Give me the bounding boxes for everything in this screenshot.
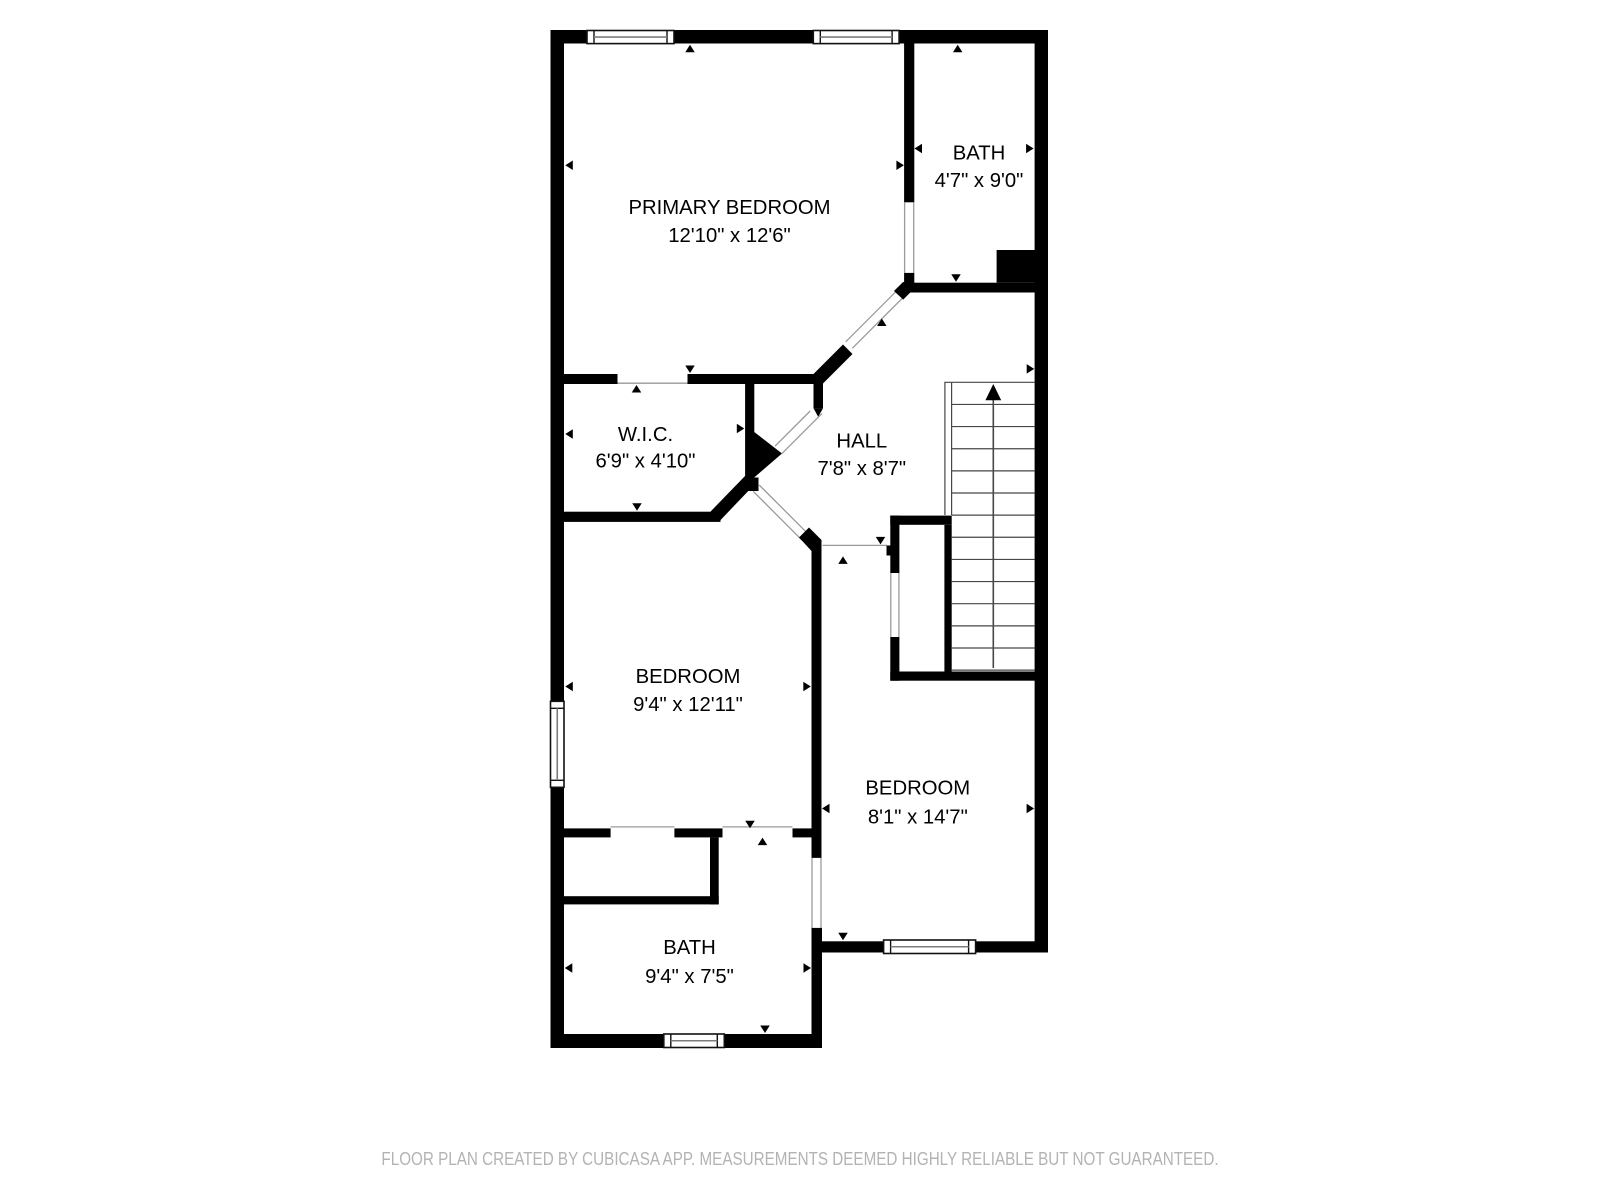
- svg-text:FLOOR PLAN CREATED BY CUBICASA: FLOOR PLAN CREATED BY CUBICASA APP. MEAS…: [381, 1149, 1218, 1170]
- svg-text:4'7" x 9'0": 4'7" x 9'0": [935, 170, 1024, 192]
- svg-text:BATH: BATH: [953, 142, 1006, 164]
- svg-text:W.I.C.: W.I.C.: [618, 424, 673, 446]
- svg-text:BEDROOM: BEDROOM: [865, 778, 970, 800]
- svg-text:BATH: BATH: [663, 937, 716, 959]
- svg-text:HALL: HALL: [836, 431, 887, 453]
- svg-text:7'8" x 8'7": 7'8" x 8'7": [817, 458, 906, 480]
- svg-text:12'10" x 12'6": 12'10" x 12'6": [668, 225, 791, 247]
- svg-text:PRIMARY BEDROOM: PRIMARY BEDROOM: [628, 197, 830, 219]
- svg-text:8'1" x 14'7": 8'1" x 14'7": [868, 807, 968, 829]
- svg-text:9'4" x 7'5": 9'4" x 7'5": [645, 966, 734, 988]
- svg-text:BEDROOM: BEDROOM: [636, 666, 741, 688]
- svg-text:6'9" x 4'10": 6'9" x 4'10": [596, 451, 696, 473]
- svg-text:9'4" x 12'11": 9'4" x 12'11": [633, 694, 743, 716]
